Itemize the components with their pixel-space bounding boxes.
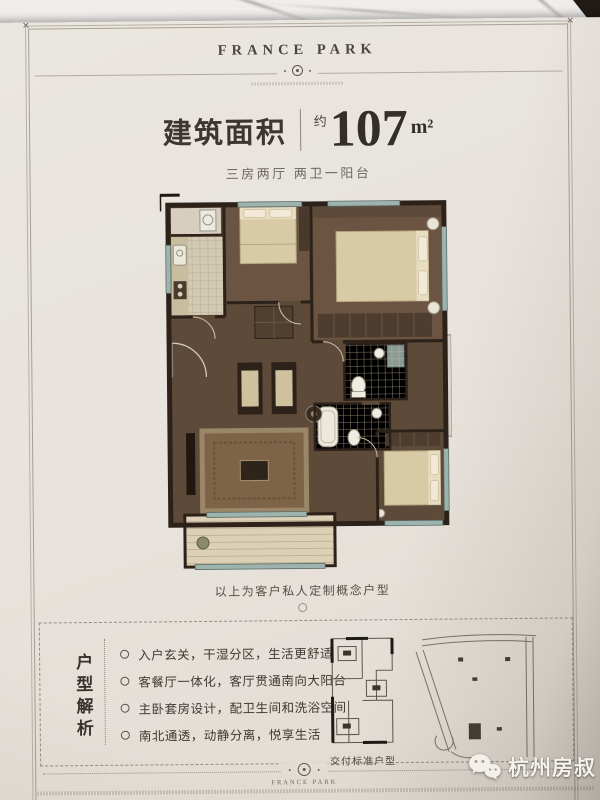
wechat-icon <box>468 752 502 782</box>
watermark: 杭州房叔 <box>468 752 596 782</box>
analysis-section: 户型解析 入户玄关，干湿分区，生活更舒适 客餐厅一体化，客厅贯通南向大阳台 主卧… <box>39 617 574 766</box>
analysis-bullet-list: 入户玄关，干湿分区，生活更舒适 客餐厅一体化，客厅贯通南向大阳台 主卧套房设计，… <box>120 643 347 753</box>
header-ornament <box>277 65 318 76</box>
list-item: 南北通透，动静分离，悦享生活 <box>121 724 347 745</box>
footer-brand-text: FRANCE PARK <box>271 779 337 787</box>
list-item: 入户玄关，干湿分区，生活更舒适 <box>120 643 346 664</box>
corner-cross-ornament: ✕ <box>566 16 574 25</box>
bullet-text: 客餐厅一体化，客厅贯通南向大阳台 <box>138 670 346 691</box>
floor-plan-drawing <box>160 191 454 576</box>
corner-cross-ornament: ✕ <box>22 22 30 31</box>
bullet-circle-icon <box>121 731 130 740</box>
site-map-drawing <box>406 622 567 765</box>
dotted-divider <box>104 639 106 745</box>
ornament-dot <box>309 69 311 71</box>
ornament-dot <box>289 769 291 771</box>
list-item: 主卧套房设计，配卫生间和洗浴空间 <box>121 697 347 718</box>
brochure-page: ✕ ✕ FRANCE PARK 建筑面积 约 107 m² 三房两厅 两卫一阳台 <box>0 17 600 800</box>
ornament-dot <box>318 768 320 770</box>
standard-plan-drawing <box>322 630 403 756</box>
circle-ornament <box>298 603 307 612</box>
bullet-circle-icon <box>120 677 129 686</box>
area-label: 建筑面积 <box>163 109 287 152</box>
bullet-circle-icon <box>120 650 129 659</box>
bullet-text: 主卧套房设计，配卫生间和洗浴空间 <box>139 697 347 718</box>
bullet-circle-icon <box>121 704 130 713</box>
vertical-divider <box>300 109 301 151</box>
rosette-icon <box>298 763 311 776</box>
photographed-brochure: ✕ ✕ FRANCE PARK 建筑面积 约 107 m² 三房两厅 两卫一阳台 <box>0 0 600 800</box>
area-unit: m² <box>411 115 434 138</box>
approx-prefix: 约 <box>314 110 327 129</box>
rosette-icon <box>292 65 303 76</box>
ornament-dot <box>284 70 286 72</box>
analysis-title: 户型解析 <box>70 653 96 741</box>
building-area-heading: 建筑面积 约 107 m² <box>29 101 567 158</box>
list-item: 客餐厅一体化，客厅贯通南向大阳台 <box>120 670 346 691</box>
watermark-text: 杭州房叔 <box>508 752 596 782</box>
area-value: 107 <box>329 103 407 156</box>
bullet-text: 南北通透，动静分离，悦享生活 <box>139 724 321 745</box>
footer-ornament <box>281 763 328 776</box>
bullet-text: 入户玄关，干湿分区，生活更舒适 <box>138 643 333 664</box>
